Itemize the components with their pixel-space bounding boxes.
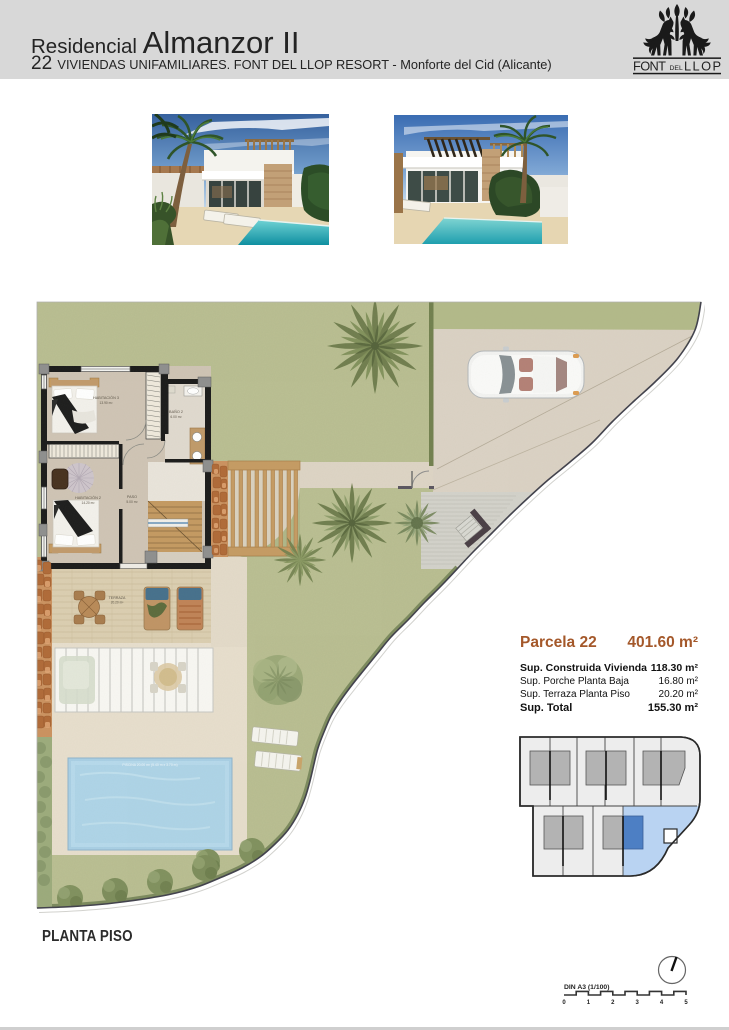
svg-text:5: 5 (684, 1000, 688, 1006)
svg-text:1: 1 (587, 1000, 591, 1006)
svg-text:3: 3 (636, 1000, 640, 1006)
svg-text:DIN A3 (1/100): DIN A3 (1/100) (564, 984, 609, 991)
svg-text:LLOP: LLOP (684, 59, 721, 74)
svg-text:2: 2 (611, 1000, 615, 1006)
svg-text:4: 4 (660, 1000, 664, 1006)
svg-text:0: 0 (562, 1000, 566, 1006)
svg-text:DEL: DEL (670, 65, 683, 72)
svg-text:FONT: FONT (633, 59, 666, 74)
